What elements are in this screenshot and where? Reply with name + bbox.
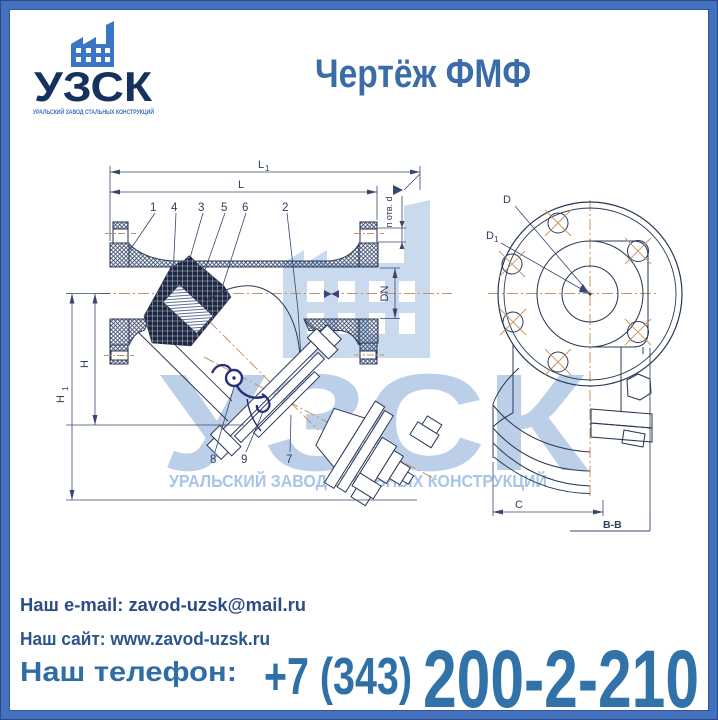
svg-text:7: 7: [286, 454, 292, 466]
svg-text:УЗСК: УЗСК: [34, 63, 153, 110]
svg-text:1: 1: [494, 235, 499, 244]
svg-text:2: 2: [282, 202, 288, 214]
svg-text:Чертёж ФМФ: Чертёж ФМФ: [315, 52, 531, 96]
svg-text:Наш e-mail: zavod-uzsk@mail.ru: Наш e-mail: zavod-uzsk@mail.ru: [20, 594, 306, 615]
svg-text:п отв. d: п отв. d: [384, 196, 394, 227]
svg-text:200-2-210: 200-2-210: [423, 634, 699, 720]
svg-text:+7 (343): +7 (343): [264, 648, 412, 706]
svg-text:L: L: [238, 179, 244, 191]
svg-text:УРАЛЬСКИЙ ЗАВОД СТАЛЬНЫХ КОНСТ: УРАЛЬСКИЙ ЗАВОД СТАЛЬНЫХ КОНСТРУКЦИЙ: [33, 107, 154, 116]
svg-text:D: D: [486, 230, 494, 242]
svg-text:1: 1: [265, 164, 270, 173]
svg-text:В-В: В-В: [603, 519, 622, 531]
svg-text:Наш сайт: www.zavod-uzsk.ru: Наш сайт: www.zavod-uzsk.ru: [20, 628, 270, 649]
svg-text:6: 6: [242, 202, 248, 214]
svg-text:H: H: [79, 360, 91, 368]
svg-text:1: 1: [150, 202, 156, 214]
svg-text:C: C: [515, 499, 523, 511]
svg-text:9: 9: [241, 454, 247, 466]
svg-text:Наш телефон:: Наш телефон:: [20, 656, 237, 687]
svg-text:1: 1: [61, 386, 70, 391]
svg-text:5: 5: [221, 202, 227, 214]
svg-text:D: D: [503, 194, 511, 206]
svg-text:3: 3: [198, 202, 204, 214]
svg-text:H: H: [55, 395, 67, 403]
svg-text:DN: DN: [379, 286, 391, 302]
svg-text:L: L: [258, 159, 264, 171]
svg-text:8: 8: [210, 454, 216, 466]
svg-text:4: 4: [171, 202, 178, 214]
